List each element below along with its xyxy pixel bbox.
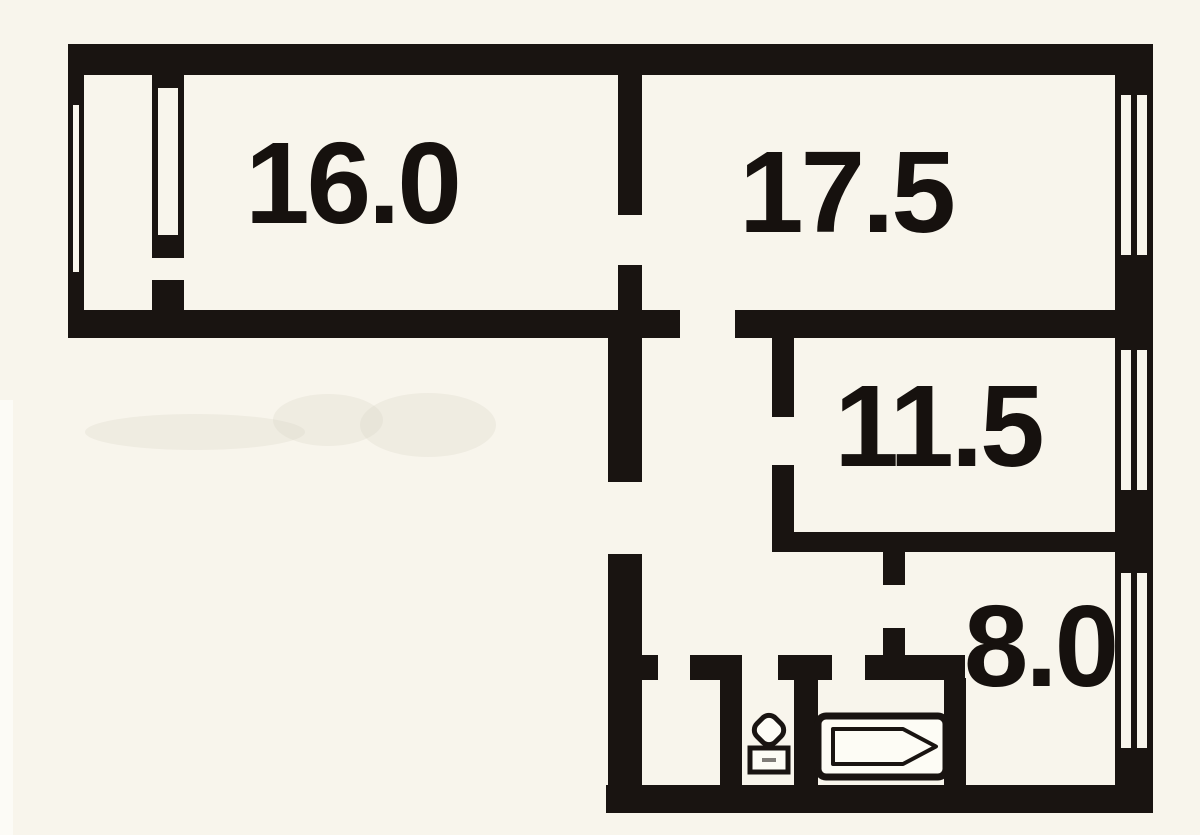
floor-plan: 16.0 17.5 11.5 8.0 (0, 0, 1200, 835)
wall-top-room11 (735, 310, 1115, 338)
window-kitchen (1115, 573, 1153, 748)
wall-corridor-left-lower (608, 554, 642, 794)
toilet-bowl (751, 712, 788, 749)
window-line (1131, 350, 1137, 490)
wall-room11-bottom (772, 532, 1115, 552)
wall-closet-wc-divider (720, 678, 742, 788)
wall-top (68, 44, 1153, 75)
window-room16-balcony-block (152, 75, 184, 312)
toilet-tank-detail (762, 758, 776, 762)
room-11-area-label: 11.5 (834, 361, 1042, 491)
wall-closet-front-stub (642, 655, 658, 680)
window-room17 (1115, 95, 1153, 255)
wall-left-upper (68, 75, 84, 105)
wall-wc-bath-divider (794, 678, 818, 788)
window-line (152, 88, 158, 235)
window-line (1147, 573, 1153, 748)
window-line (1115, 350, 1121, 490)
wall-divider-16-17-upper (618, 75, 642, 215)
window-line (1115, 95, 1121, 255)
wall-stub (152, 75, 184, 88)
scan-edge-strip (0, 400, 13, 835)
wall-right-pier-mid2 (1115, 490, 1153, 573)
window-line (68, 105, 73, 272)
wall-segment (152, 280, 184, 312)
wall-kitchen-left-upper (883, 552, 905, 585)
wall-divider-16-17-lower (618, 265, 642, 338)
wall-bottom (606, 785, 1153, 813)
room-17-area-label: 17.5 (739, 127, 953, 257)
wall-right-pier-top (1115, 75, 1153, 95)
wall-wc-front-left (690, 655, 742, 680)
window-line (178, 88, 184, 235)
window-line (1131, 573, 1137, 748)
wall-left-lower (68, 272, 84, 312)
wall-room11-left-upper (772, 338, 794, 417)
window-room11 (1115, 350, 1153, 490)
scan-artifacts (0, 393, 496, 835)
window-line (1147, 95, 1153, 255)
wall-right-pier-bottom (1115, 748, 1153, 813)
wall-segment (152, 235, 184, 258)
wall-wc-front-right (778, 655, 832, 680)
scan-smudge (360, 393, 496, 457)
wall-under-room16 (68, 310, 680, 338)
kitchen-area-label: 8.0 (964, 581, 1116, 711)
toilet-icon (750, 712, 788, 772)
wall-bathroom-top (865, 655, 965, 680)
bathtub-icon (818, 716, 946, 777)
floor-plan-drawing: 16.0 17.5 11.5 8.0 (0, 0, 1200, 835)
wall-corridor-left-upper (608, 338, 642, 482)
window-line (1147, 350, 1153, 490)
window-left-loggia (68, 105, 84, 272)
room-16-area-label: 16.0 (245, 118, 459, 248)
window-line (1131, 95, 1137, 255)
scan-smudge (85, 414, 305, 450)
wall-kitchen-left-lower (883, 628, 905, 658)
wall-right-pier-mid1 (1115, 255, 1153, 350)
window-line (79, 105, 84, 272)
